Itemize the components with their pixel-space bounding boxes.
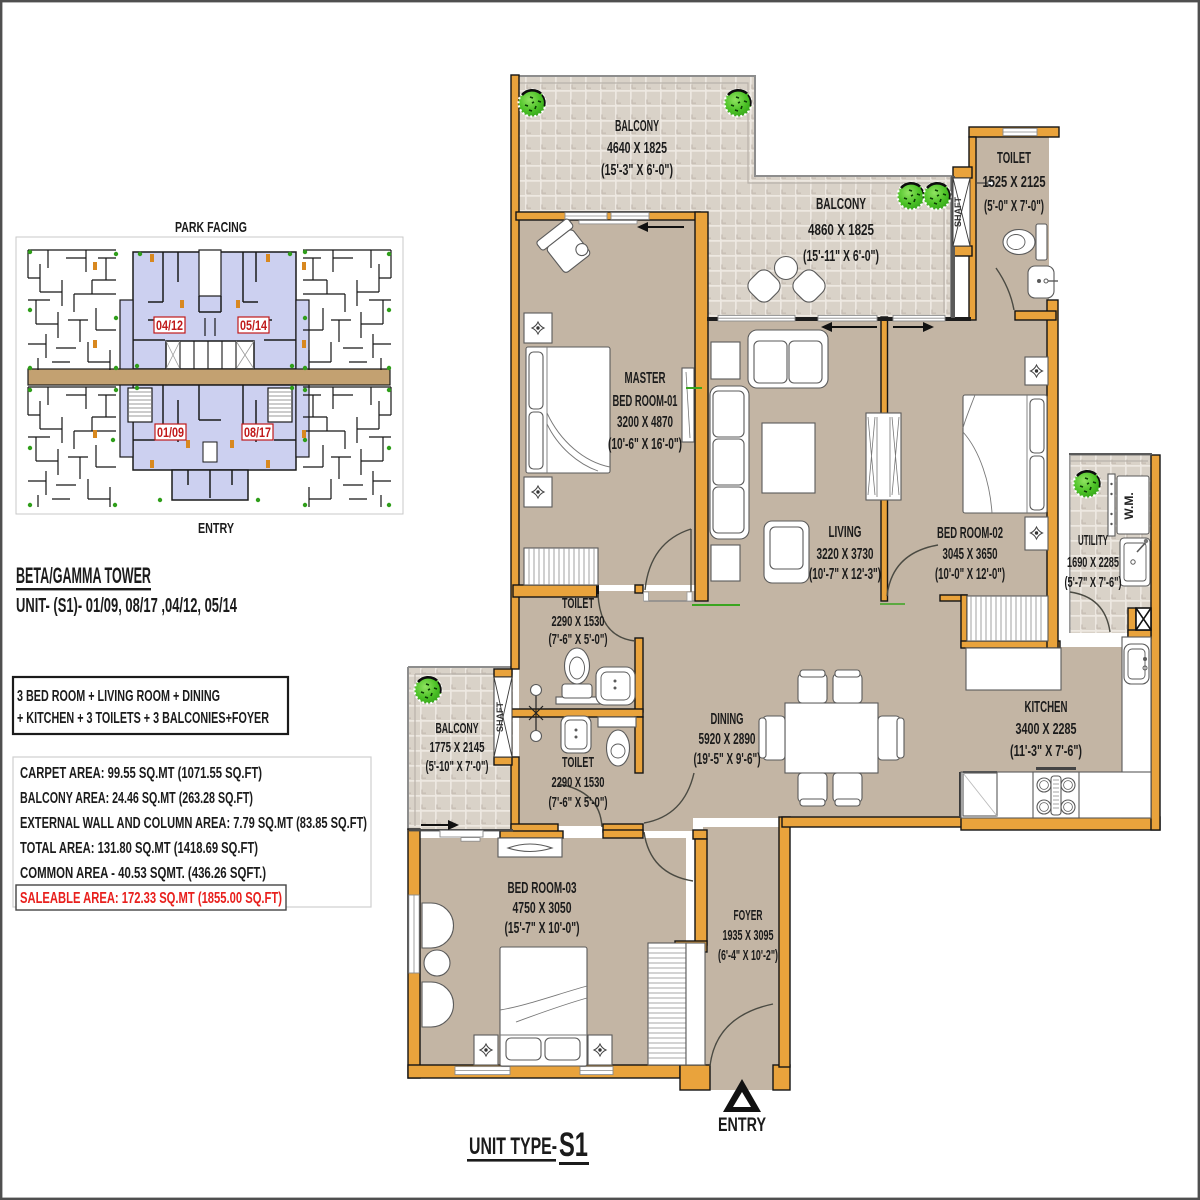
svg-text:(10'-0" X 12'-0"): (10'-0" X 12'-0") <box>935 566 1005 583</box>
svg-text:BED ROOM-02: BED ROOM-02 <box>937 525 1003 542</box>
svg-text:TOILET: TOILET <box>562 754 594 771</box>
svg-text:(10'-7" X 12'-3"): (10'-7" X 12'-3") <box>809 566 881 583</box>
svg-text:1775 X 2145: 1775 X 2145 <box>430 739 485 756</box>
svg-text:FOYER: FOYER <box>734 907 763 924</box>
svg-text:1935 X 3095: 1935 X 3095 <box>723 927 774 944</box>
svg-text:1690 X 2285: 1690 X 2285 <box>1067 554 1119 571</box>
svg-text:COMMON AREA - 40.53 SQMT. (436: COMMON AREA - 40.53 SQMT. (436.26 SQFT.) <box>20 865 266 882</box>
svg-text:3200 X 4870: 3200 X 4870 <box>617 414 673 431</box>
svg-text:UTILITY: UTILITY <box>1078 532 1108 549</box>
svg-text:DINING: DINING <box>711 711 744 728</box>
svg-text:(5'-0" X 7'-0"): (5'-0" X 7'-0") <box>984 198 1044 215</box>
svg-text:EXTERNAL WALL AND COLUMN AREA:: EXTERNAL WALL AND COLUMN AREA: 7.79 SQ.M… <box>20 815 367 832</box>
svg-text:BALCONY AREA: 24.46 SQ.MT (263: BALCONY AREA: 24.46 SQ.MT (263.28 SQ.FT) <box>20 790 253 807</box>
svg-text:SALEABLE AREA: 172.33 SQ.MT (1: SALEABLE AREA: 172.33 SQ.MT (1855.00 SQ.… <box>20 890 282 907</box>
svg-text:KITCHEN: KITCHEN <box>1025 699 1068 716</box>
svg-text:W.M.: W.M. <box>1122 492 1136 519</box>
svg-text:(15'-7" X 10'-0"): (15'-7" X 10'-0") <box>505 920 580 937</box>
svg-text:3 BED ROOM + LIVING ROOM + DIN: 3 BED ROOM + LIVING ROOM + DINING <box>17 688 220 705</box>
svg-text:1525 X 2125: 1525 X 2125 <box>983 174 1046 191</box>
svg-text:UNIT TYPE-: UNIT TYPE- <box>469 1133 557 1160</box>
svg-text:TOILET: TOILET <box>562 595 594 612</box>
svg-text:S1: S1 <box>559 1126 588 1164</box>
svg-text:BETA/GAMMA TOWER: BETA/GAMMA TOWER <box>16 563 151 588</box>
svg-text:(7'-6" X 5'-0"): (7'-6" X 5'-0") <box>549 631 608 648</box>
svg-text:(15'-11" X 6'-0"): (15'-11" X 6'-0") <box>803 248 879 265</box>
svg-text:CARPET AREA: 99.55 SQ.MT (1071: CARPET AREA: 99.55 SQ.MT (1071.55 SQ.FT) <box>20 765 262 782</box>
svg-text:4750 X 3050: 4750 X 3050 <box>513 900 572 917</box>
svg-text:3400 X 2285: 3400 X 2285 <box>1016 721 1077 738</box>
svg-text:5920 X 2890: 5920 X 2890 <box>699 731 756 748</box>
svg-text:TOTAL AREA: 131.80 SQ.MT (1418: TOTAL AREA: 131.80 SQ.MT (1418.69 SQ.FT) <box>20 840 258 857</box>
svg-text:(5'-10" X 7'-0"): (5'-10" X 7'-0") <box>426 758 489 775</box>
svg-text:(10'-6" X 16'-0"): (10'-6" X 16'-0") <box>608 436 682 453</box>
svg-text:04/12: 04/12 <box>156 317 183 333</box>
svg-text:TOILET: TOILET <box>997 150 1031 167</box>
svg-text:ENTRY: ENTRY <box>718 1115 766 1136</box>
svg-text:2290 X 1530: 2290 X 1530 <box>552 613 605 630</box>
svg-text:(6'-4" X 10'-2"): (6'-4" X 10'-2") <box>718 947 778 964</box>
svg-text:08/17: 08/17 <box>244 424 271 440</box>
svg-text:ENTRY: ENTRY <box>198 520 234 537</box>
svg-text:PARK FACING: PARK FACING <box>175 219 247 236</box>
svg-text:4860 X 1825: 4860 X 1825 <box>808 222 874 239</box>
svg-text:01/09: 01/09 <box>157 424 184 440</box>
svg-text:2290 X 1530: 2290 X 1530 <box>552 774 605 791</box>
svg-text:(11'-3" X 7'-6"): (11'-3" X 7'-6") <box>1010 743 1082 760</box>
svg-text:LIVING: LIVING <box>829 524 862 541</box>
svg-text:SHAFT: SHAFT <box>495 702 505 732</box>
svg-text:(15'-3" X 6'-0"): (15'-3" X 6'-0") <box>601 162 673 179</box>
svg-text:MASTER: MASTER <box>625 370 666 387</box>
svg-text:(7'-6" X 5'-0"): (7'-6" X 5'-0") <box>549 794 608 811</box>
svg-text:SHAFT: SHAFT <box>953 197 963 227</box>
svg-text:BED ROOM-03: BED ROOM-03 <box>508 880 577 897</box>
svg-text:BALCONY: BALCONY <box>816 196 866 213</box>
svg-text:3220 X 3730: 3220 X 3730 <box>817 546 874 563</box>
svg-text:(19'-5" X 9'-6"): (19'-5" X 9'-6") <box>694 751 761 768</box>
svg-text:BALCONY: BALCONY <box>436 720 479 737</box>
svg-text:(5'-7" X 7'-6"): (5'-7" X 7'-6") <box>1065 574 1122 591</box>
svg-text:BED ROOM-01: BED ROOM-01 <box>613 393 678 410</box>
svg-text:3045 X 3650: 3045 X 3650 <box>943 546 998 563</box>
svg-text:+ KITCHEN + 3 TOILETS + 3 BALC: + KITCHEN + 3 TOILETS + 3 BALCONIES+FOYE… <box>17 710 269 727</box>
svg-text:BALCONY: BALCONY <box>615 118 659 135</box>
svg-text:4640 X 1825: 4640 X 1825 <box>607 140 667 157</box>
svg-text:05/14: 05/14 <box>240 317 267 333</box>
svg-text:UNIT- (S1)- 01/09, 08/17 ,04/1: UNIT- (S1)- 01/09, 08/17 ,04/12, 05/14 <box>16 595 238 617</box>
